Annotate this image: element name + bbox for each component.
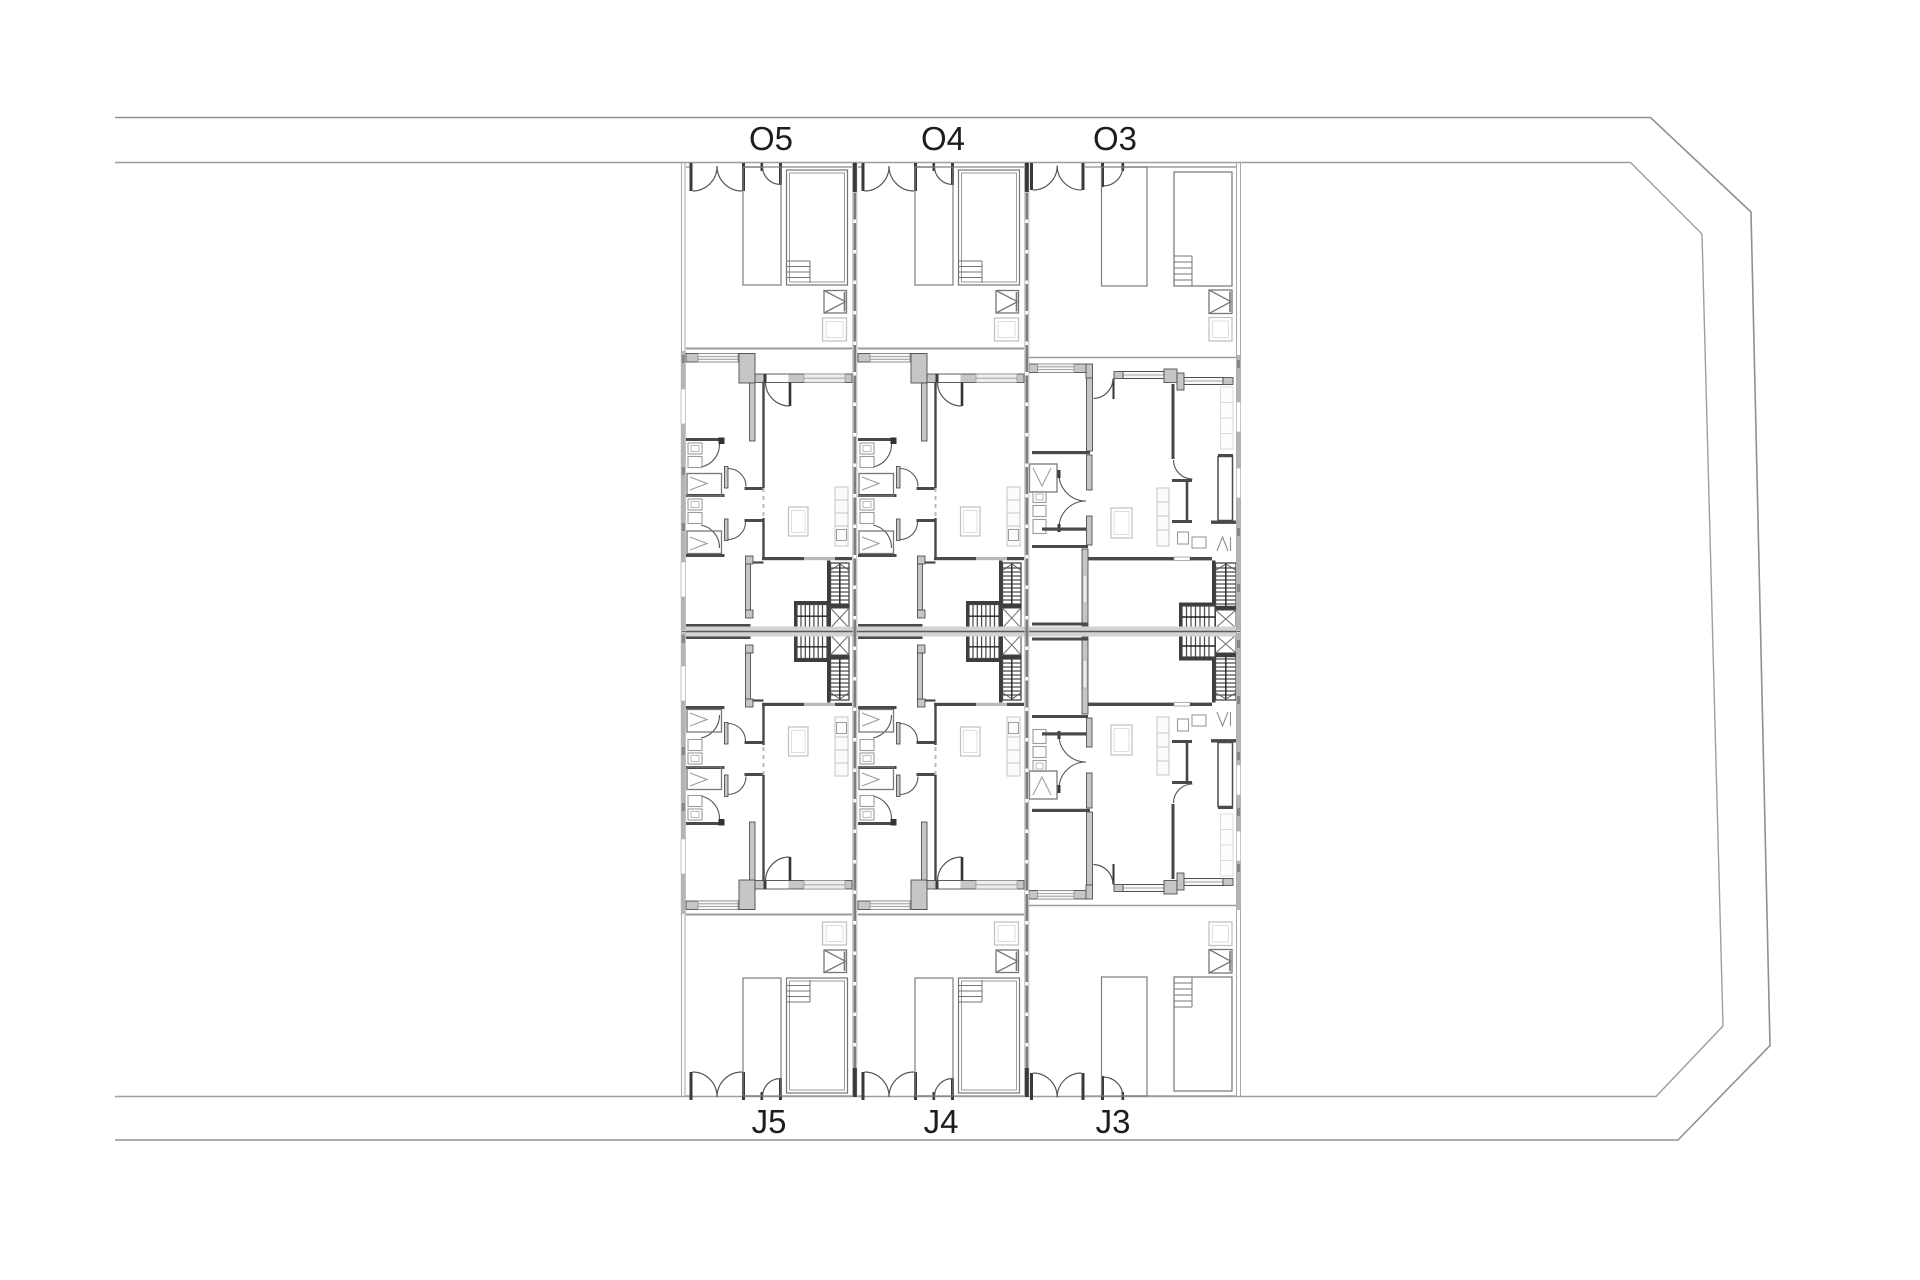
svg-text:J5: J5 (752, 1103, 787, 1140)
svg-text:J3: J3 (1096, 1103, 1131, 1140)
svg-text:O3: O3 (1093, 120, 1137, 157)
svg-text:J4: J4 (924, 1103, 959, 1140)
svg-text:O4: O4 (921, 120, 965, 157)
svg-text:O5: O5 (749, 120, 793, 157)
